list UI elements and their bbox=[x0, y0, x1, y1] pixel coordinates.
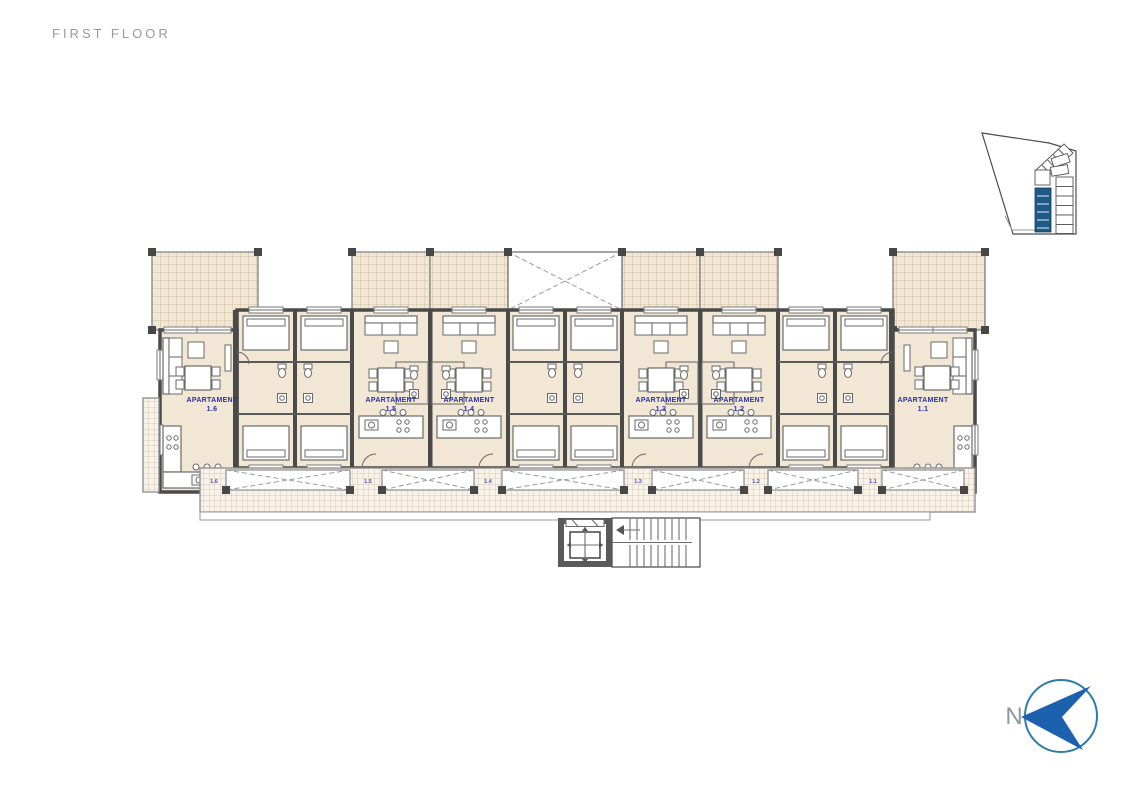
bed bbox=[783, 426, 829, 460]
pillar bbox=[254, 248, 262, 256]
bed bbox=[841, 426, 887, 460]
pillar bbox=[504, 248, 512, 256]
bed bbox=[513, 316, 559, 350]
bed bbox=[513, 426, 559, 460]
pillar bbox=[148, 326, 156, 334]
pillar bbox=[348, 248, 356, 256]
site-plan-inset bbox=[982, 133, 1076, 234]
pillar bbox=[774, 248, 782, 256]
bed bbox=[301, 426, 347, 460]
pergola-openings bbox=[226, 470, 964, 490]
north-indicator: N bbox=[1005, 680, 1097, 752]
terrace-apt-1-2 bbox=[700, 252, 778, 310]
pillar bbox=[426, 248, 434, 256]
side-deck-left bbox=[143, 398, 159, 492]
terrace-right bbox=[893, 252, 985, 330]
pillar bbox=[981, 248, 989, 256]
floor-plan: APARTAMENT1.6 APARTAMENT1.5 APARTAMENT1.… bbox=[0, 0, 1133, 800]
pillar bbox=[148, 248, 156, 256]
bed bbox=[301, 316, 347, 350]
pillar bbox=[696, 248, 704, 256]
site-current-building-highlight bbox=[1035, 188, 1051, 232]
svg-text:1.2: 1.2 bbox=[752, 479, 760, 485]
site-building-neighbor bbox=[1035, 170, 1050, 185]
elevator bbox=[558, 518, 612, 567]
bed bbox=[243, 426, 289, 460]
svg-text:1.1: 1.1 bbox=[869, 479, 877, 485]
circulation-core bbox=[558, 518, 700, 567]
bed bbox=[783, 316, 829, 350]
bed bbox=[243, 316, 289, 350]
svg-text:1.5: 1.5 bbox=[364, 479, 372, 485]
bed bbox=[571, 426, 617, 460]
pillar bbox=[889, 248, 897, 256]
north-letter: N bbox=[1005, 703, 1022, 730]
staircase bbox=[612, 518, 700, 567]
pillar bbox=[981, 326, 989, 334]
bed bbox=[841, 316, 887, 350]
terrace-apt-1-5 bbox=[352, 252, 430, 310]
svg-text:1.4: 1.4 bbox=[484, 479, 493, 485]
bed bbox=[571, 316, 617, 350]
svg-text:1.3: 1.3 bbox=[634, 479, 642, 485]
pillar bbox=[618, 248, 626, 256]
central-void bbox=[508, 252, 622, 310]
terrace-apt-1-3 bbox=[622, 252, 700, 310]
svg-text:1.6: 1.6 bbox=[210, 479, 218, 485]
drawing-sheet: FIRST FLOOR bbox=[0, 0, 1133, 800]
terrace-apt-1-4 bbox=[430, 252, 508, 310]
